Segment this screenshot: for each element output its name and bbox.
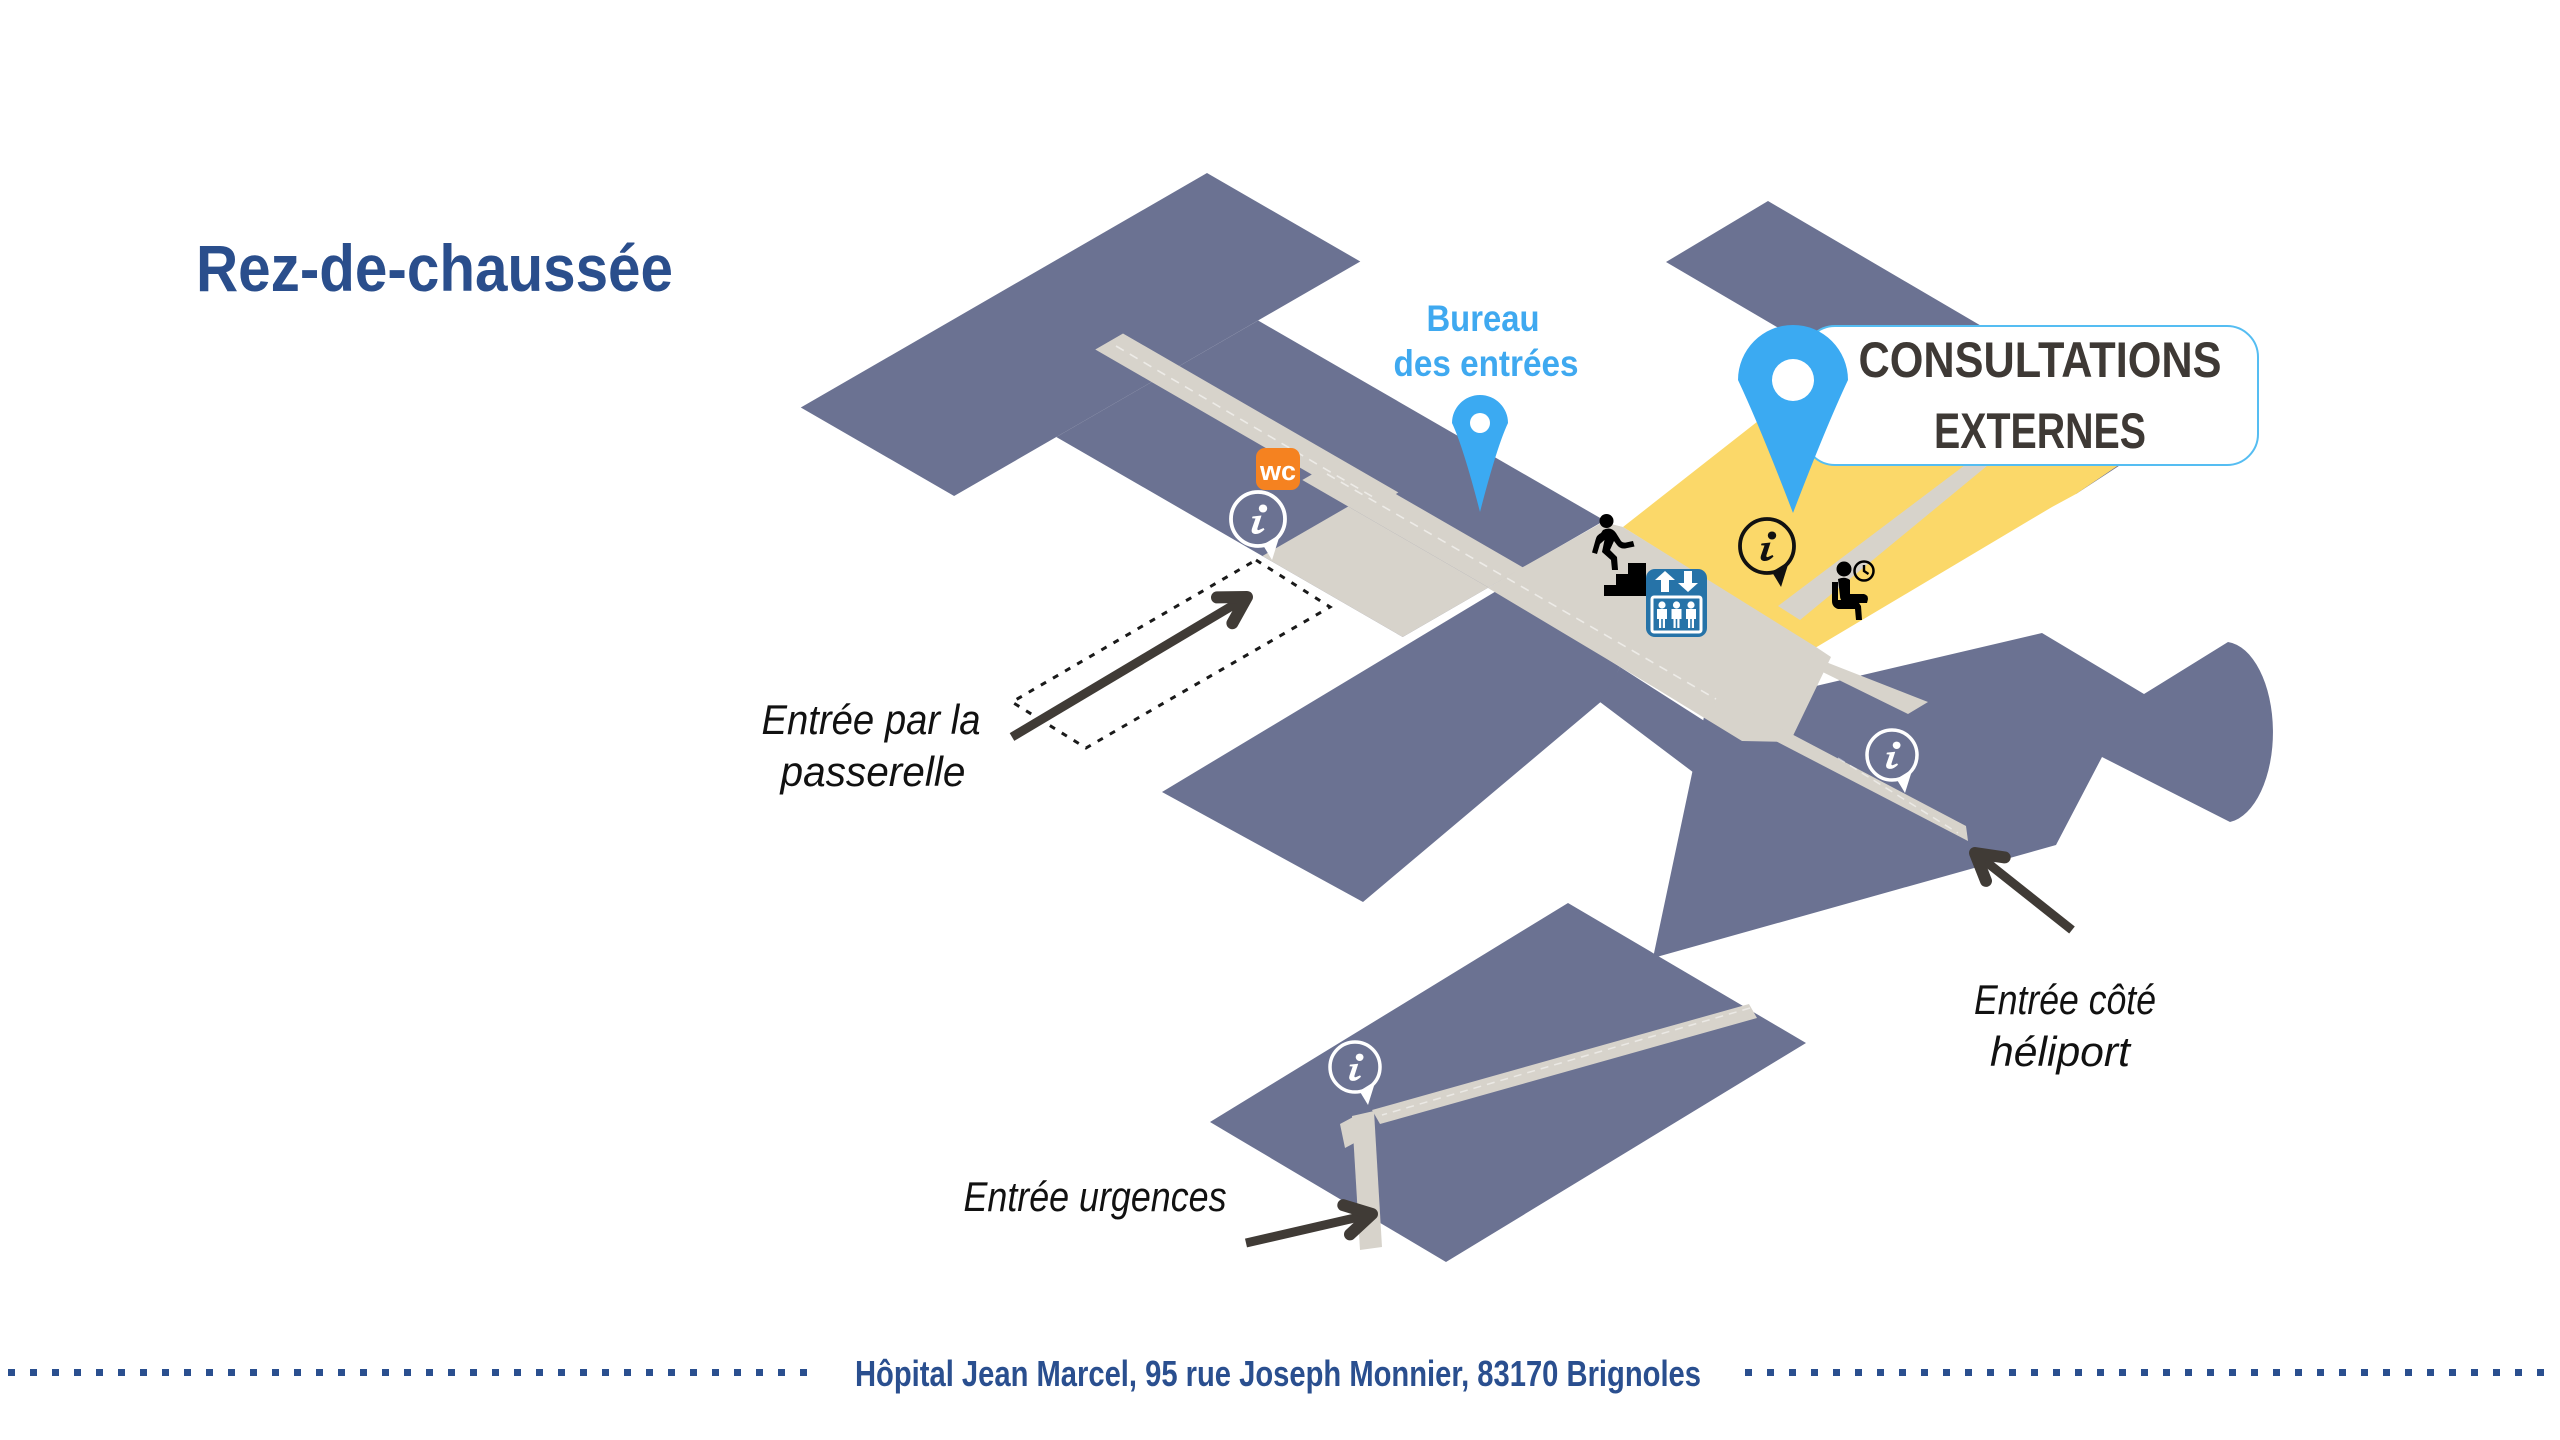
- svg-text:wc: wc: [1259, 456, 1296, 486]
- svg-text:passerelle: passerelle: [779, 748, 966, 795]
- svg-text:CONSULTATIONS: CONSULTATIONS: [1859, 332, 2222, 388]
- svg-text:Rez-de-chaussée: Rez-de-chaussée: [196, 231, 673, 305]
- svg-text:héliport: héliport: [1990, 1028, 2132, 1075]
- svg-text:Hôpital Jean Marcel, 95 rue Jo: Hôpital Jean Marcel, 95 rue Joseph Monni…: [855, 1353, 1701, 1394]
- svg-text:des entrées: des entrées: [1394, 343, 1579, 384]
- svg-text:Entrée par la: Entrée par la: [762, 696, 981, 743]
- svg-text:Entrée urgences: Entrée urgences: [964, 1173, 1227, 1220]
- svg-text:Entrée côté: Entrée côté: [1974, 976, 2156, 1023]
- svg-text:Bureau: Bureau: [1427, 298, 1540, 339]
- svg-text:EXTERNES: EXTERNES: [1934, 403, 2146, 459]
